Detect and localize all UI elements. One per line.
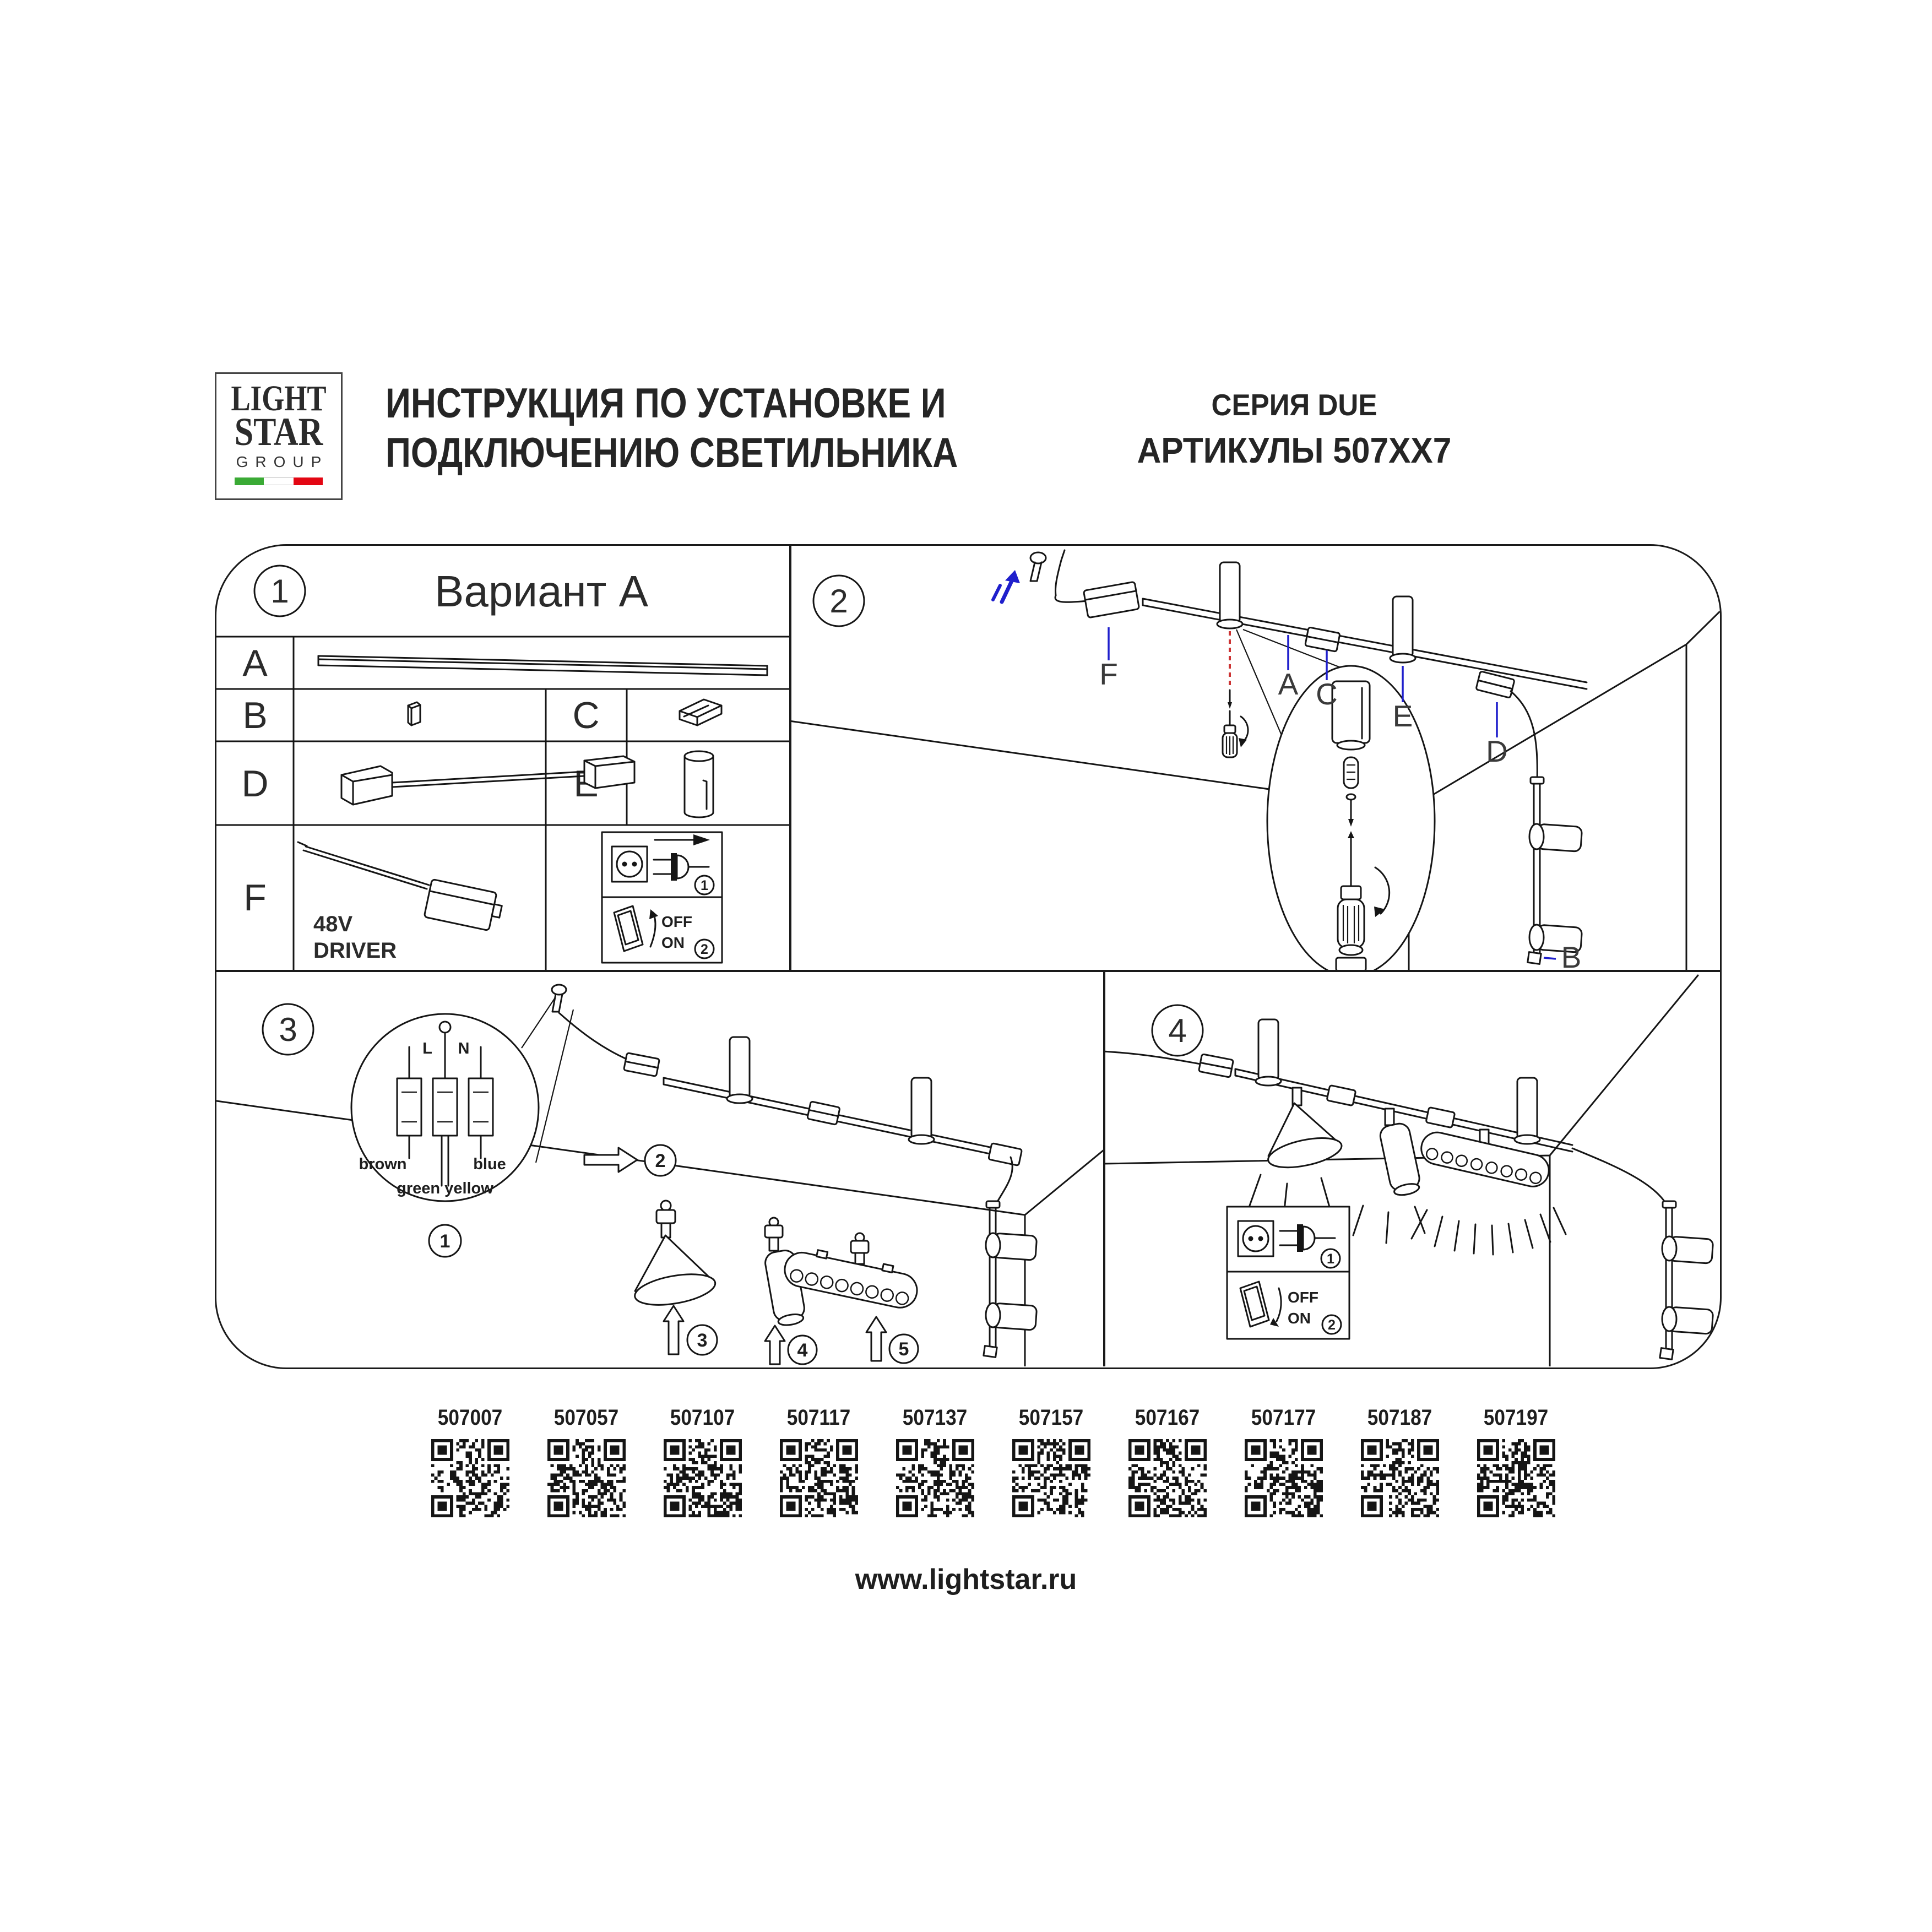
wall-spot-light-2 — [1662, 1307, 1713, 1334]
qr-code — [1012, 1439, 1090, 1517]
driver-voltage-label: 48V — [313, 912, 352, 936]
qr-item: 507137 — [877, 1405, 993, 1549]
screwdriver-icon — [1223, 711, 1248, 757]
row-label-c: C — [572, 694, 599, 736]
qr-article-number: 507177 — [1233, 1405, 1335, 1430]
variant-title: Вариант A — [435, 567, 649, 616]
wall-track — [1666, 1208, 1672, 1358]
step5-badge: 5 — [889, 1334, 918, 1363]
track-connector — [1305, 627, 1340, 652]
wall-plug-icon — [1344, 757, 1358, 788]
connector-piece-icon — [1336, 958, 1366, 970]
qr-article-number: 507187 — [1349, 1405, 1451, 1430]
power-step1: 1 — [701, 878, 708, 893]
end-cap-b — [984, 1346, 997, 1358]
panel1-parts-table: 1 Вариант A A B C D E F — [216, 546, 789, 970]
panel3-number: 3 — [279, 1011, 297, 1048]
qr-article-number: 507007 — [419, 1405, 522, 1430]
callout-e: E — [1393, 699, 1413, 733]
qr-item: 507007 — [412, 1405, 528, 1549]
power-sequence-box: 1 OFF ON 2 — [1227, 1207, 1349, 1339]
qr-article-number: 507197 — [1465, 1405, 1567, 1430]
qr-code — [1128, 1439, 1207, 1517]
series-name: СЕРИЯ DUE — [1130, 388, 1458, 422]
step4-badge: 4 — [788, 1336, 817, 1364]
room-perspective-lines — [216, 1101, 1103, 1366]
socket-icon — [1238, 1221, 1273, 1256]
end-cap-b — [1660, 1348, 1673, 1360]
screw-icon — [1228, 690, 1232, 709]
logo-word-group: GROUP — [216, 453, 341, 471]
callout-f: F — [1099, 657, 1118, 691]
page-title-line2: ПОДКЛЮЧЕНИЮ СВЕТИЛЬНИКА — [386, 428, 958, 478]
power-cable — [1103, 1051, 1209, 1066]
page-title-line1: ИНСТРУКЦИЯ ПО УСТАНОВКЕ И — [386, 379, 958, 428]
cone-spotlight — [625, 1201, 717, 1310]
qr-item: 507197 — [1458, 1405, 1574, 1549]
cylinder-spotlight-on — [1353, 1109, 1425, 1243]
step3-badge: 3 — [687, 1325, 717, 1355]
callout-d: D — [1486, 734, 1508, 768]
power-sequence-box: 1 OFF ON 2 — [602, 832, 722, 963]
qr-item: 507187 — [1342, 1405, 1458, 1549]
qr-article-number: 507057 — [535, 1405, 638, 1430]
socket-icon — [612, 846, 647, 882]
standoff-post-2 — [1515, 1078, 1540, 1144]
callout-b: B — [1561, 940, 1582, 970]
panel1-number: 1 — [270, 573, 289, 610]
adapter-d — [1476, 671, 1515, 698]
step1-badge: 1 — [429, 1225, 461, 1257]
flag-white — [264, 477, 293, 485]
panel2-mounting-diagram: 2 — [789, 546, 1720, 970]
insert-arrow-5 — [866, 1317, 886, 1361]
part-c-adapter — [680, 699, 721, 725]
standoff-post-2 — [909, 1078, 934, 1144]
wire-label-l: L — [422, 1040, 432, 1057]
qr-item: 507107 — [644, 1405, 761, 1549]
track-connector — [807, 1101, 840, 1125]
panel3-wiring-diagram: 3 L N brown blue green yellow — [216, 970, 1103, 1366]
articles-code: АРТИКУЛЫ 507XX7 — [1130, 431, 1458, 470]
divider-vertical-top — [789, 546, 791, 970]
power-cable-curve — [1055, 595, 1088, 602]
qr-code — [896, 1439, 974, 1517]
off-label: OFF — [661, 913, 692, 930]
standoff-post-2 — [1390, 596, 1415, 663]
power-step1: 1 — [1327, 1251, 1334, 1267]
instruction-diagram: 1 Вариант A A B C D E F — [215, 544, 1722, 1369]
part-f-driver: 48V DRIVER — [298, 842, 504, 963]
panel2-number-badge: 2 — [813, 576, 864, 626]
ceiling-hook-icon — [552, 985, 566, 1012]
end-cap-b — [1528, 952, 1541, 964]
qr-item: 507117 — [761, 1405, 877, 1549]
part-b-end-cap — [408, 702, 420, 725]
qr-code — [547, 1439, 626, 1517]
power-step2: 2 — [1328, 1317, 1336, 1333]
standoff-post-1 — [1217, 562, 1242, 628]
wall-spot-light-2 — [986, 1303, 1037, 1330]
part-e-standoff — [685, 751, 713, 817]
qr-code — [431, 1439, 509, 1517]
wall-track — [990, 1208, 996, 1355]
linear-light-on — [1412, 1129, 1566, 1255]
qr-item: 507057 — [528, 1405, 644, 1549]
wire-label-green-yellow: green yellow — [397, 1180, 493, 1197]
qr-article-number: 507157 — [1000, 1405, 1103, 1430]
svg-text:2: 2 — [655, 1150, 666, 1171]
row-label-d: D — [241, 763, 268, 805]
standoff-post-1 — [727, 1037, 752, 1103]
qr-code — [780, 1439, 858, 1517]
off-label: OFF — [1288, 1289, 1318, 1306]
page-title: ИНСТРУКЦИЯ ПО УСТАНОВКЕ И ПОДКЛЮЧЕНИЮ СВ… — [386, 379, 958, 478]
panel2-number: 2 — [829, 583, 848, 620]
qr-item: 507167 — [1109, 1405, 1225, 1549]
slide-in-arrow — [584, 1148, 637, 1172]
lightstar-logo: LIGHT STAR GROUP — [215, 372, 343, 500]
qr-article-number: 507117 — [768, 1405, 870, 1430]
qr-code — [1361, 1439, 1439, 1517]
cone-spotlight-on — [1250, 1088, 1344, 1215]
qr-code-row: 507007 507057 507107 507117 507137 50715… — [412, 1405, 1575, 1549]
svg-text:5: 5 — [899, 1339, 909, 1360]
driver-box — [1083, 582, 1139, 618]
qr-code — [664, 1439, 742, 1517]
wiring-detail-magnifier: L N brown blue green yellow — [351, 1014, 539, 1201]
room-perspective-lines — [789, 612, 1719, 970]
insert-direction-arrow — [993, 570, 1020, 602]
qr-item: 507157 — [993, 1405, 1109, 1549]
on-label: ON — [661, 934, 685, 951]
svg-text:3: 3 — [697, 1330, 708, 1351]
power-cable — [1055, 550, 1065, 595]
wall-spot-light-1 — [1662, 1236, 1713, 1263]
standoff-post-1 — [1256, 1019, 1281, 1086]
track-connector-1 — [1327, 1085, 1356, 1105]
qr-article-number: 507167 — [1116, 1405, 1219, 1430]
qr-article-number: 507137 — [884, 1405, 986, 1430]
row-label-a: A — [242, 642, 268, 684]
flag-red — [294, 477, 323, 485]
divider-horizontal — [216, 970, 1720, 972]
insert-arrow-4 — [765, 1326, 785, 1364]
svg-text:4: 4 — [797, 1340, 808, 1361]
panel4-number-badge: 4 — [1152, 1005, 1203, 1056]
wall-spot-light-1 — [986, 1233, 1037, 1260]
wire-label-blue: blue — [473, 1155, 506, 1173]
qr-code — [1245, 1439, 1323, 1517]
driver-box — [1198, 1054, 1233, 1077]
row-label-b: B — [242, 694, 267, 736]
qr-code — [1477, 1439, 1555, 1517]
divider-vertical-bottom — [1103, 970, 1105, 1366]
ceiling-hook-icon — [1030, 552, 1046, 581]
on-label: ON — [1288, 1310, 1311, 1327]
corner-cable — [1511, 691, 1537, 782]
corner-cable — [1572, 1148, 1667, 1206]
insert-arrow-3 — [664, 1306, 683, 1354]
driver-name-label: DRIVER — [313, 938, 397, 963]
wire-label-brown: brown — [359, 1155, 407, 1173]
track-connector-2 — [1426, 1107, 1455, 1127]
wire-label-n: N — [458, 1040, 470, 1057]
callout-c: C — [1316, 677, 1338, 711]
panel4-result-diagram: 4 — [1103, 970, 1720, 1366]
panel3-number-badge: 3 — [263, 1004, 313, 1055]
series-block: СЕРИЯ DUE АРТИКУЛЫ 507XX7 — [1130, 388, 1458, 470]
step2-badge: 2 — [645, 1145, 676, 1176]
callout-a: A — [1278, 667, 1299, 701]
website-url: www.lightstar.ru — [0, 1563, 1932, 1596]
wall-spot-light-1 — [1529, 824, 1582, 851]
driver-box — [623, 1053, 659, 1077]
qr-item: 507177 — [1225, 1405, 1342, 1549]
qr-article-number: 507107 — [652, 1405, 754, 1430]
part-a-track-rail — [318, 656, 767, 675]
track-end-connector — [989, 1143, 1022, 1166]
italian-flag-bar — [235, 477, 323, 485]
flag-green — [235, 477, 264, 485]
panel4-number: 4 — [1168, 1012, 1186, 1049]
logo-word-star: STAR — [225, 415, 332, 449]
power-step2: 2 — [701, 942, 708, 957]
panel1-number-badge: 1 — [254, 566, 305, 616]
row-label-f: F — [243, 877, 267, 919]
svg-text:1: 1 — [440, 1231, 451, 1252]
